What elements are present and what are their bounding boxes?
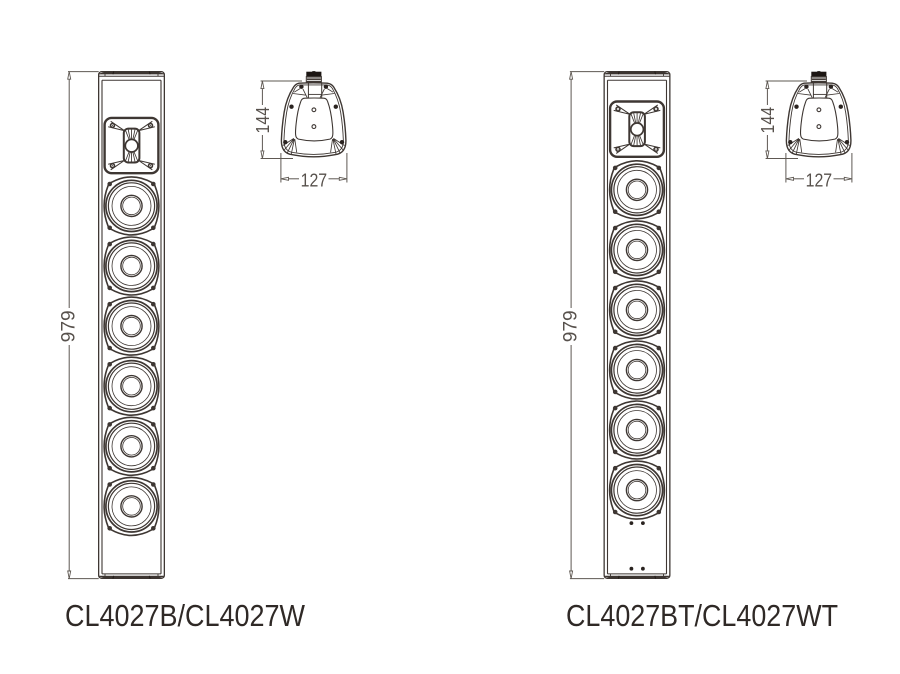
svg-text:CL4027B/CL4027W: CL4027B/CL4027W <box>65 598 306 633</box>
svg-text:979: 979 <box>59 310 80 342</box>
svg-text:979: 979 <box>561 310 582 342</box>
svg-text:127: 127 <box>806 170 833 191</box>
svg-text:144: 144 <box>757 107 778 134</box>
svg-text:144: 144 <box>252 107 273 134</box>
svg-text:127: 127 <box>301 170 328 191</box>
svg-text:CL4027BT/CL4027WT: CL4027BT/CL4027WT <box>566 598 838 633</box>
